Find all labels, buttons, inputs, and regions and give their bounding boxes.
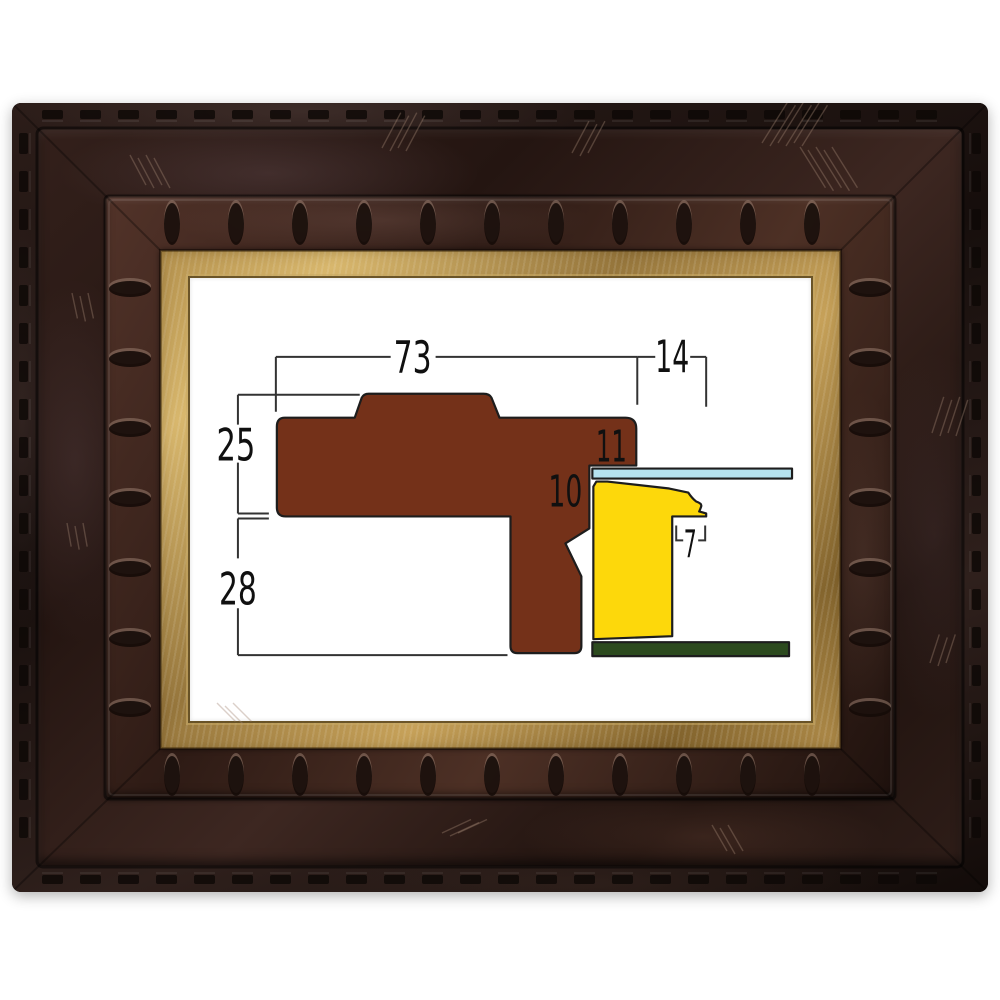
- cross-section-diagram: 73 14 25 28: [190, 278, 811, 721]
- dim-label-lower-height: 28: [219, 562, 257, 615]
- dim-label-rabbet-height: 11: [596, 422, 627, 473]
- dimension-lower-height: 28: [219, 518, 508, 655]
- dim-label-glass-step: 10: [548, 466, 582, 517]
- frame-gold-liner: 73 14 25 28: [160, 250, 841, 749]
- product-photo: 73 14 25 28: [0, 0, 1000, 1000]
- dimension-overhang: 14: [637, 330, 706, 407]
- frame-opening: 73 14 25 28: [190, 278, 811, 721]
- dim-label-upper-height: 25: [216, 419, 255, 472]
- frame-profile-shape: [277, 394, 636, 653]
- backing-bar: [592, 642, 789, 656]
- dim-label-overhang: 14: [655, 330, 689, 383]
- picture-frame: 73 14 25 28: [12, 103, 988, 892]
- dim-label-lip-width: 7: [684, 522, 697, 566]
- dim-label-total-width: 73: [394, 331, 432, 384]
- dimension-lip-width: 7: [676, 522, 705, 566]
